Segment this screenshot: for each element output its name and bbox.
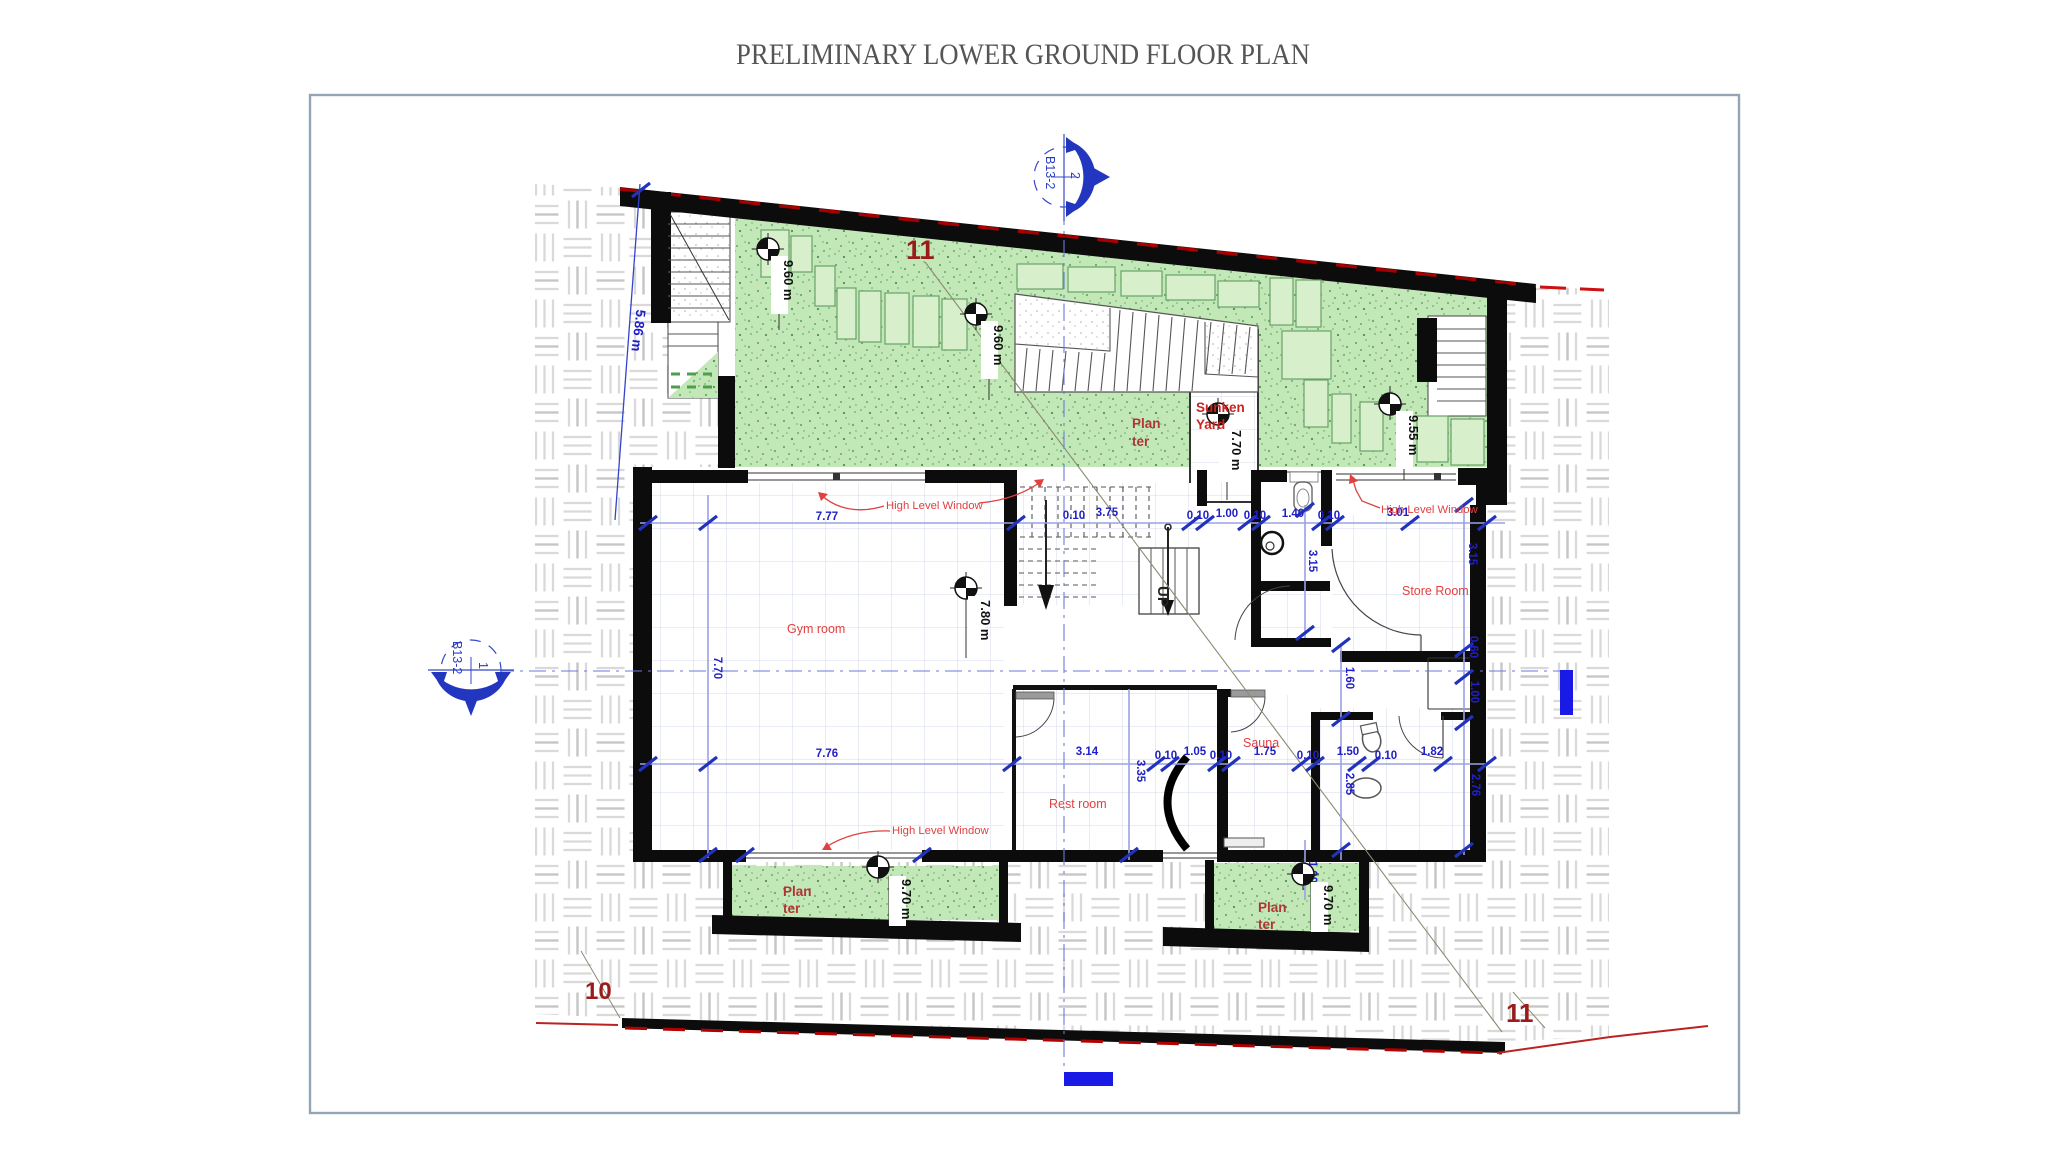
svg-text:Sauna: Sauna [1243,736,1279,750]
svg-text:Plan: Plan [1258,900,1287,915]
svg-text:Store Room: Store Room [1402,584,1469,598]
svg-text:1.82: 1.82 [1421,746,1443,758]
svg-text:3.35: 3.35 [1134,760,1146,783]
svg-text:2.76: 2.76 [1469,774,1481,796]
svg-text:1: 1 [476,662,490,669]
svg-text:9.70 m: 9.70 m [1321,885,1336,925]
svg-text:High Level Window: High Level Window [886,500,984,512]
svg-text:1.50: 1.50 [1337,746,1359,758]
svg-text:Plan: Plan [783,884,812,899]
svg-text:11: 11 [906,235,935,265]
svg-text:3.15: 3.15 [1466,543,1478,566]
svg-text:1.60: 1.60 [1343,667,1355,689]
svg-text:0.10: 0.10 [1155,750,1177,762]
svg-text:3.75: 3.75 [1096,507,1119,519]
svg-text:Sunken: Sunken [1196,400,1245,415]
svg-text:7.70: 7.70 [711,657,723,679]
svg-text:3.15: 3.15 [1306,550,1318,573]
svg-text:2: 2 [1068,172,1082,179]
svg-text:9.55 m: 9.55 m [1406,415,1421,455]
svg-text:7.80 m: 7.80 m [978,600,993,640]
svg-text:0.10: 0.10 [1063,510,1085,522]
svg-text:0.10: 0.10 [1297,750,1319,762]
svg-text:1.00: 1.00 [1216,508,1238,520]
svg-text:7.77: 7.77 [816,511,838,523]
svg-text:UP: UP [1154,586,1171,607]
svg-text:B13-2: B13-2 [1043,156,1057,189]
svg-text:High Level Window: High Level Window [892,825,990,837]
svg-text:Rest room: Rest room [1049,797,1107,811]
svg-text:2.85: 2.85 [1343,773,1355,796]
svg-text:1.40: 1.40 [1282,508,1304,520]
svg-text:9.60 m: 9.60 m [991,325,1006,365]
svg-text:7.70 m: 7.70 m [1229,430,1244,470]
svg-text:B13-2: B13-2 [450,641,464,674]
svg-text:0.10: 0.10 [1210,750,1232,762]
svg-text:1.00: 1.00 [1468,681,1480,703]
svg-text:High Level Window: High Level Window [1381,504,1479,516]
svg-text:1.05: 1.05 [1184,746,1207,758]
svg-text:PRELIMINARY LOWER GROUND FLOOR: PRELIMINARY LOWER GROUND FLOOR PLAN [736,38,1310,71]
svg-text:9.70 m: 9.70 m [899,879,914,919]
svg-text:ter: ter [783,901,801,916]
svg-text:Plan: Plan [1132,416,1161,431]
svg-text:ter: ter [1258,917,1276,932]
svg-text:11: 11 [1506,998,1534,1028]
svg-text:ter: ter [1132,434,1150,449]
svg-text:Gym room: Gym room [787,622,845,636]
svg-text:10: 10 [585,978,612,1005]
svg-text:0.60: 0.60 [1467,636,1479,658]
svg-text:0.10: 0.10 [1244,510,1266,522]
svg-text:0.10: 0.10 [1187,510,1209,522]
svg-text:0.10: 0.10 [1318,510,1340,522]
svg-text:3.14: 3.14 [1076,746,1099,758]
svg-text:0.10: 0.10 [1375,750,1397,762]
svg-text:9.60 m: 9.60 m [781,260,796,300]
svg-text:7.76: 7.76 [816,748,838,760]
svg-text:Yard: Yard [1196,417,1225,432]
